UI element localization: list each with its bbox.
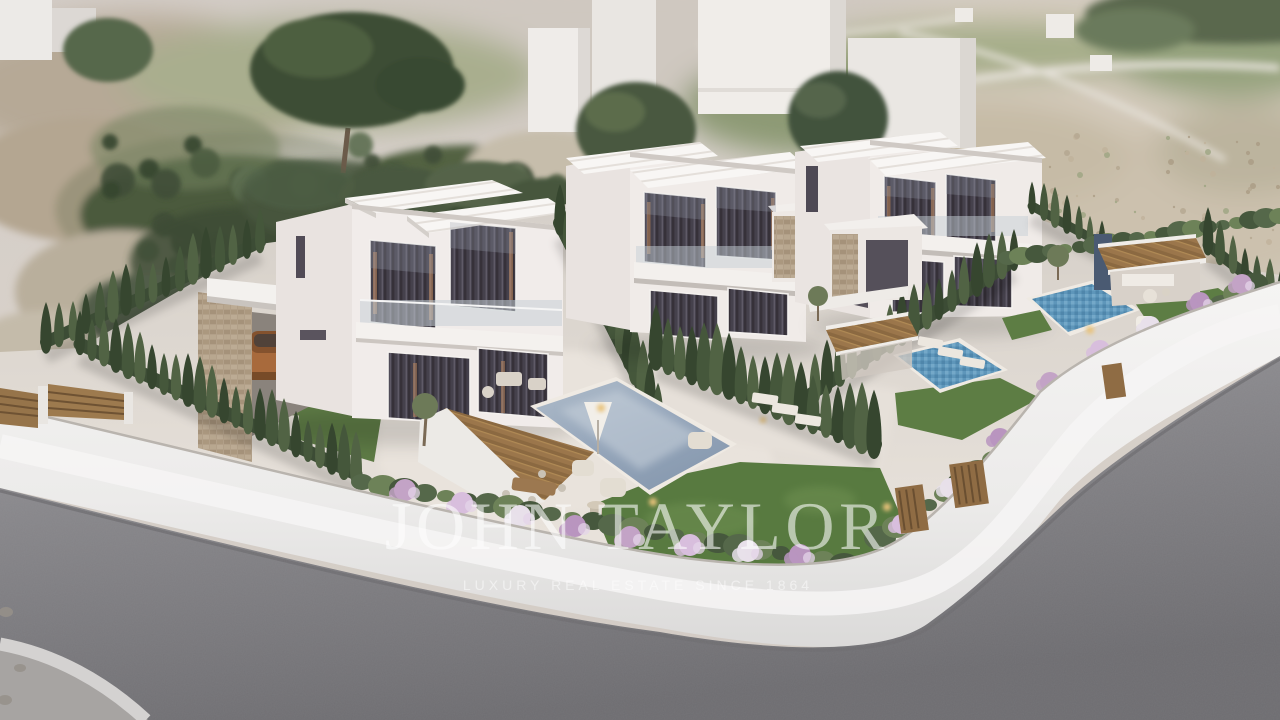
svg-text:JOHN TAYLOR: JOHN TAYLOR: [385, 488, 889, 564]
svg-text:LUXURY REAL ESTATE SINCE 1864: LUXURY REAL ESTATE SINCE 1864: [463, 577, 813, 593]
